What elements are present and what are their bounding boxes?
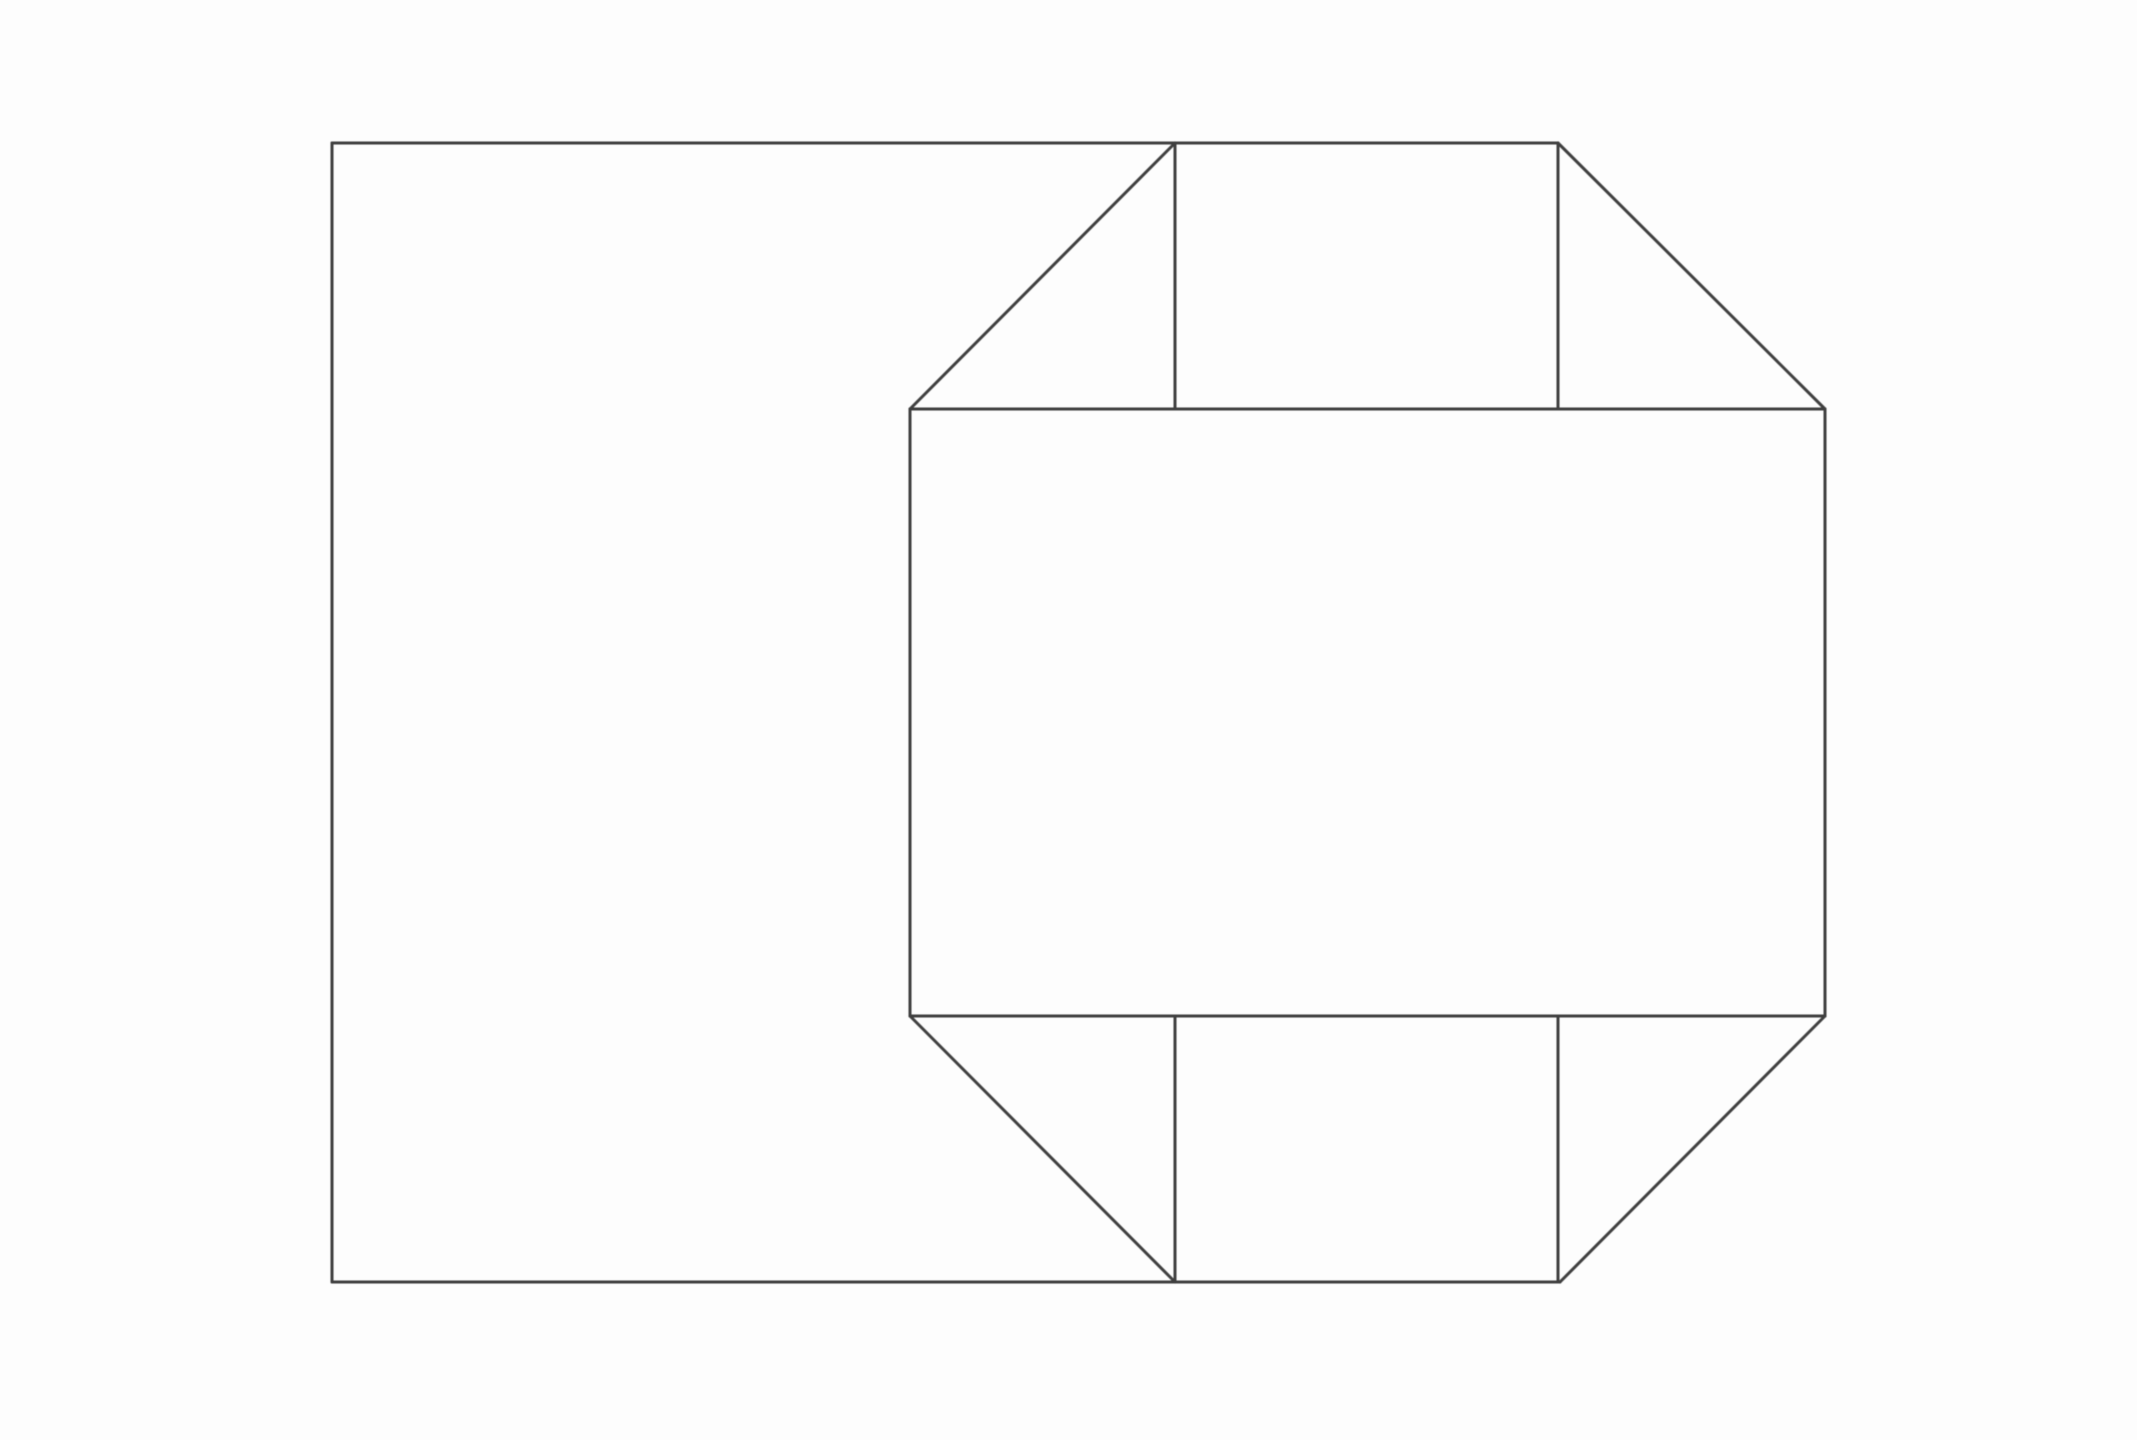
drawing-canvas xyxy=(0,0,2137,1440)
segment-top-left-chamfer xyxy=(910,143,1175,409)
segment-bottom-right-chamfer xyxy=(1560,1016,1825,1282)
rectangle-octagon-line-figure xyxy=(0,0,2137,1440)
segment-bottom-left-chamfer xyxy=(910,1016,1175,1282)
segment-top-right-chamfer xyxy=(1558,143,1825,409)
